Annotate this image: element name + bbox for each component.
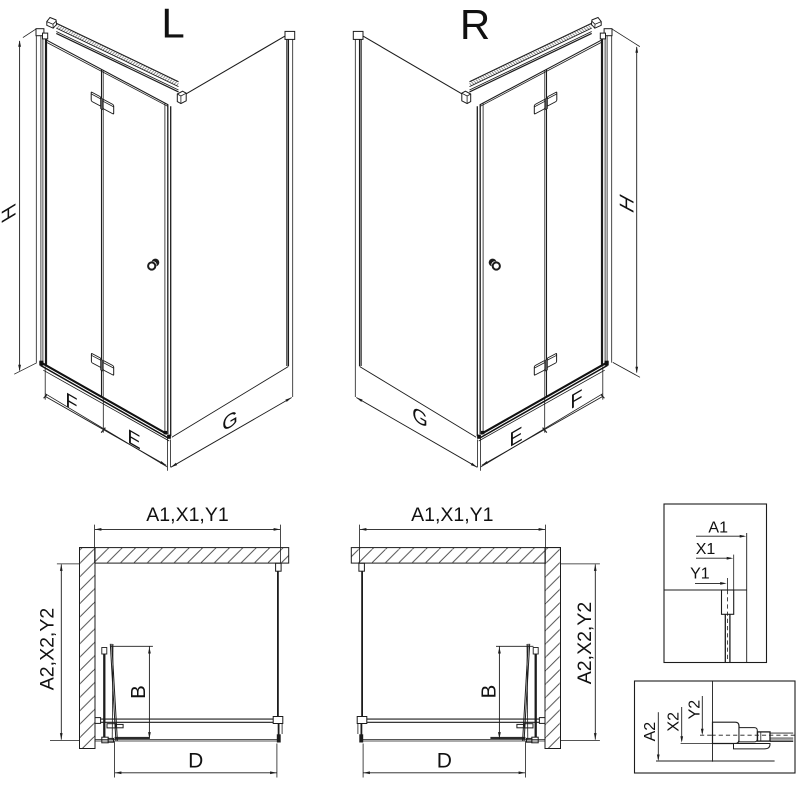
svg-text:B: B [127, 685, 150, 699]
svg-text:A2: A2 [642, 722, 659, 742]
svg-text:R: R [460, 1, 490, 48]
svg-text:Y1: Y1 [690, 566, 710, 583]
svg-text:B: B [478, 685, 501, 699]
svg-text:A1,X1,Y1: A1,X1,Y1 [411, 504, 493, 526]
svg-text:L: L [161, 0, 184, 47]
svg-text:Y2: Y2 [687, 700, 704, 720]
svg-text:D: D [188, 750, 203, 773]
svg-text:X1: X1 [696, 541, 716, 558]
svg-text:A1,X1,Y1: A1,X1,Y1 [146, 504, 228, 526]
svg-text:D: D [437, 750, 452, 773]
svg-text:A2,X2,Y2: A2,X2,Y2 [36, 608, 58, 690]
svg-text:A2,X2,Y2: A2,X2,Y2 [574, 602, 596, 684]
svg-text:A1: A1 [708, 520, 728, 537]
svg-text:X2: X2 [665, 712, 682, 732]
